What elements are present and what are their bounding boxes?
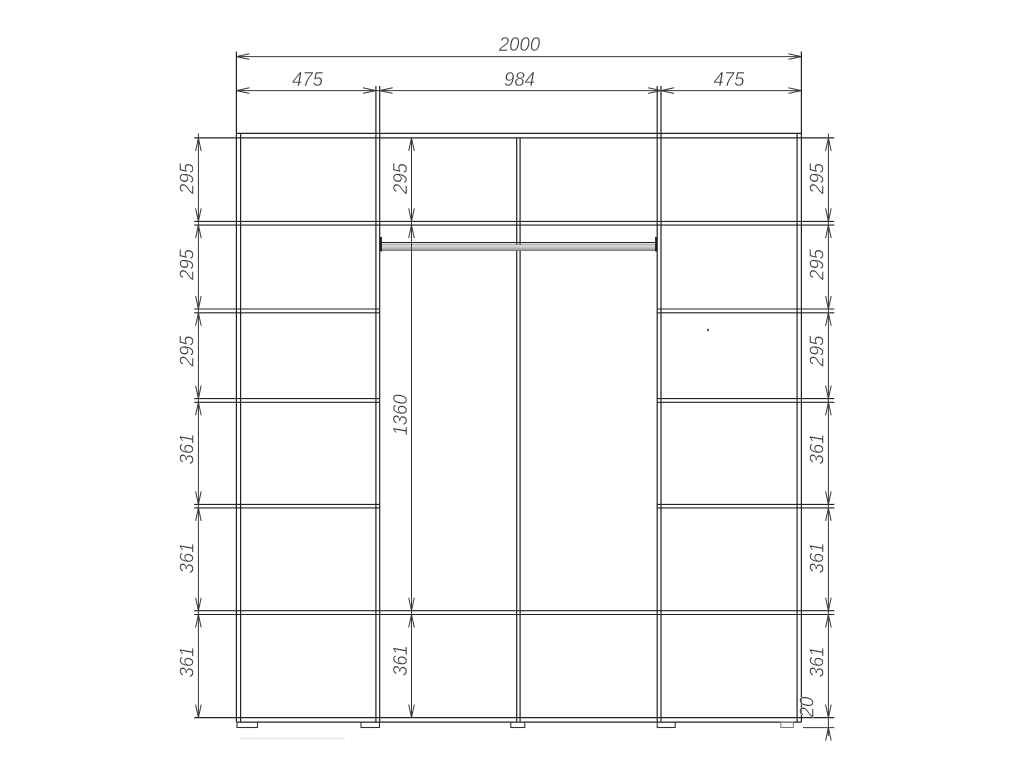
svg-text:1360: 1360 — [390, 394, 412, 436]
svg-text:361: 361 — [807, 433, 829, 464]
svg-text:361: 361 — [807, 542, 829, 573]
svg-text:2000: 2000 — [498, 34, 541, 56]
svg-text:475: 475 — [292, 69, 323, 91]
svg-text:295: 295 — [390, 163, 412, 195]
svg-text:295: 295 — [807, 249, 829, 281]
svg-text:361: 361 — [390, 645, 412, 676]
svg-text:295: 295 — [807, 163, 829, 195]
svg-text:475: 475 — [713, 69, 744, 91]
svg-text:984: 984 — [504, 69, 535, 91]
svg-text:361: 361 — [177, 646, 199, 677]
svg-text:20: 20 — [797, 696, 819, 718]
svg-text:295: 295 — [807, 335, 829, 367]
svg-text:361: 361 — [177, 542, 199, 573]
svg-text:295: 295 — [177, 249, 199, 281]
svg-text:295: 295 — [177, 163, 199, 195]
svg-text:295: 295 — [177, 335, 199, 367]
svg-text:361: 361 — [807, 646, 829, 677]
svg-text:361: 361 — [177, 433, 199, 464]
